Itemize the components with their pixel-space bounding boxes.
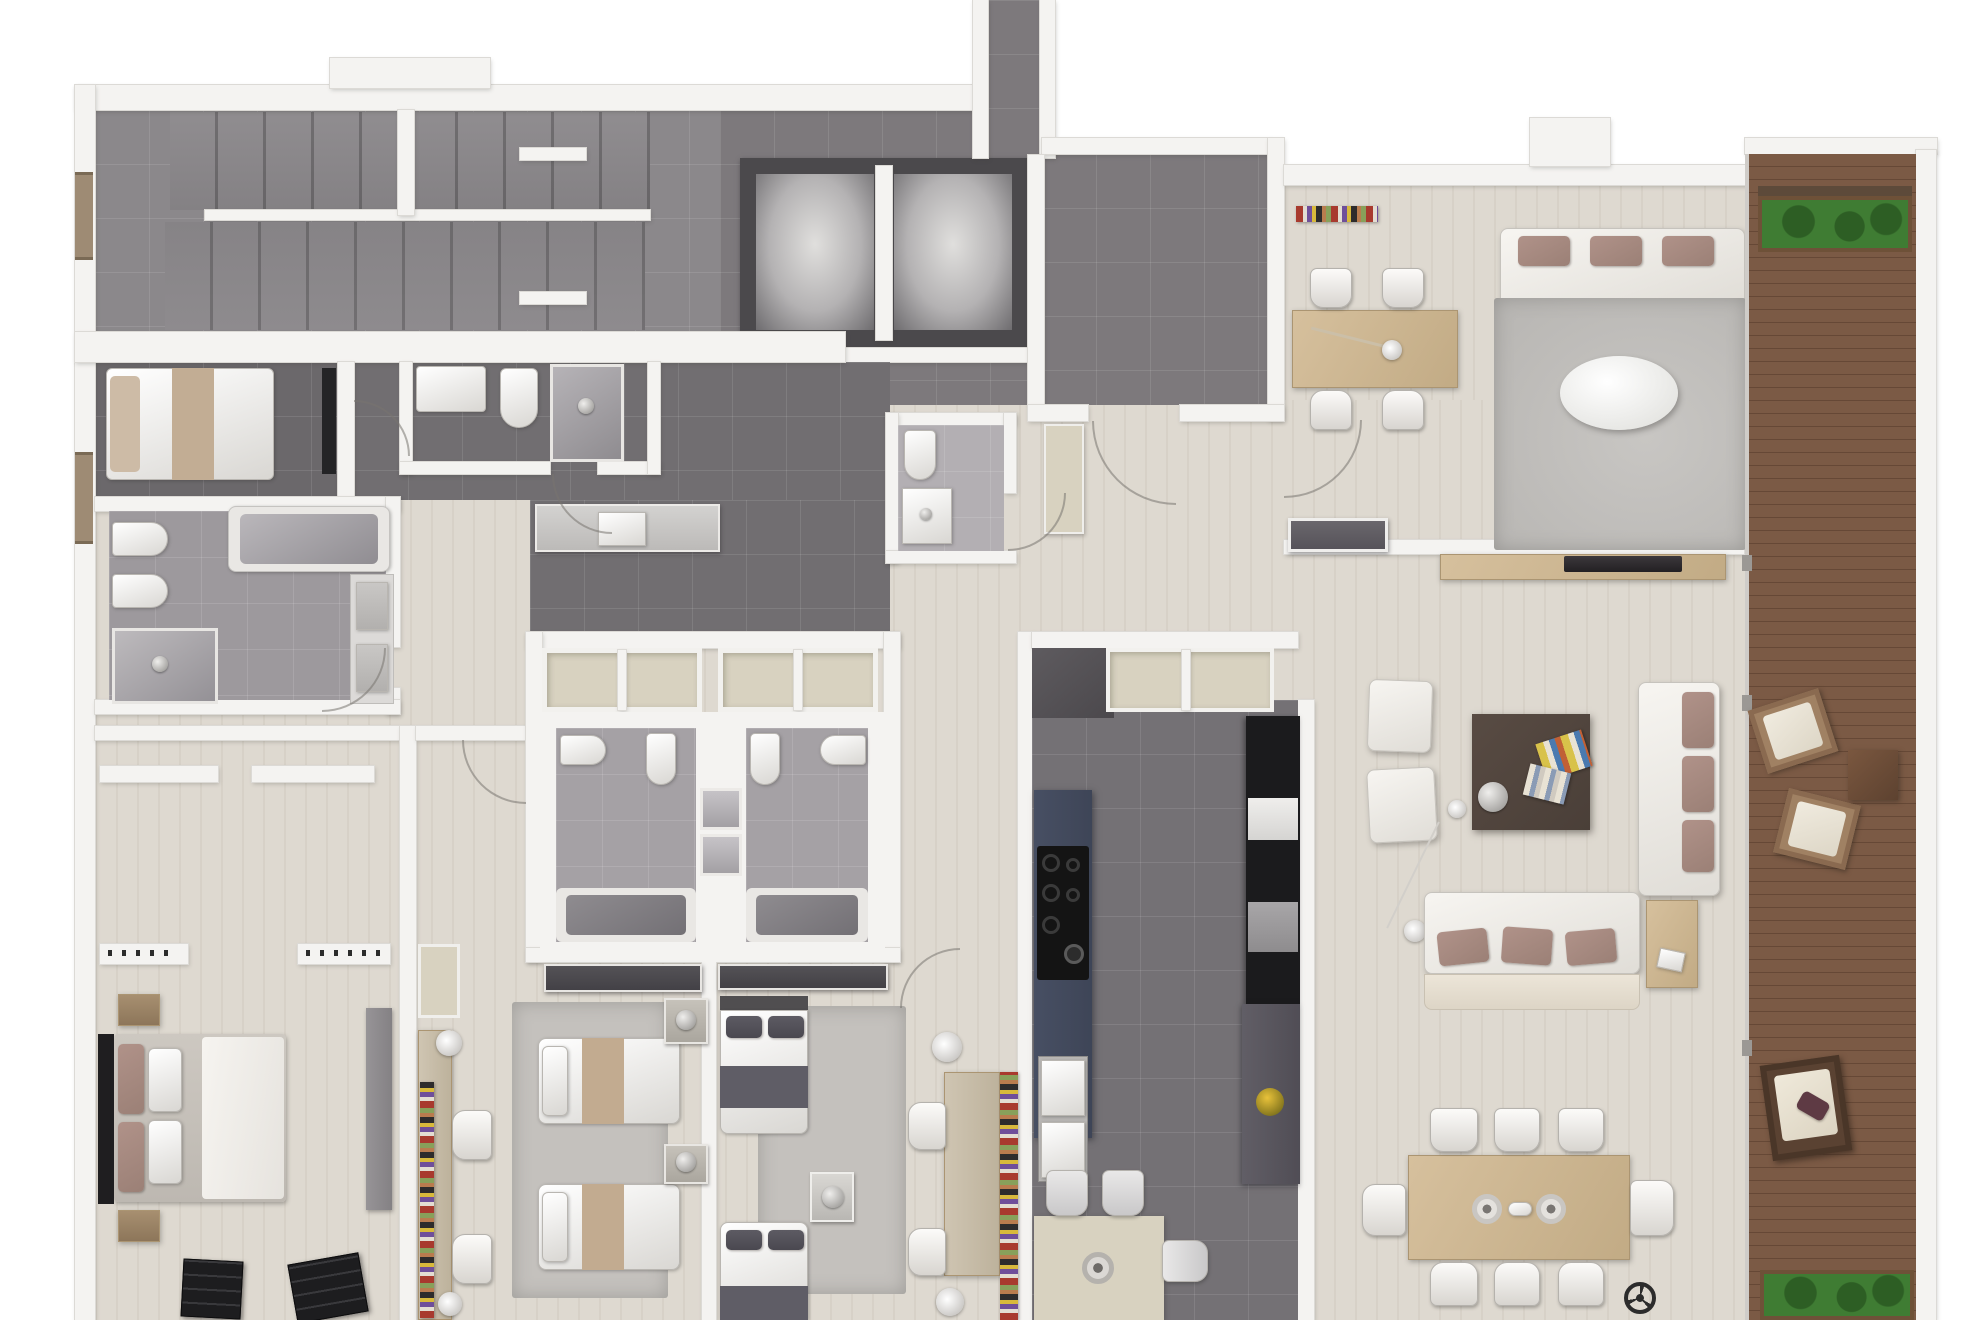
kitchen-upper-cabinets (1106, 648, 1274, 712)
wall-bump-top (330, 58, 490, 88)
wall-hall-top (1042, 138, 1272, 154)
bath-upper-shower-drain (578, 398, 594, 414)
closet-rail-2-hangers (306, 950, 380, 956)
dining-chair-left (1362, 1184, 1406, 1236)
elevator-divider-wall (876, 166, 892, 340)
wall-study-top (1284, 165, 1749, 185)
living-sofa-right-cushion-3 (1682, 820, 1714, 872)
wall-master-zone-top (95, 726, 400, 740)
lounge-sofa-top-cushion-3 (1662, 236, 1714, 266)
study-chair-4 (1382, 390, 1424, 430)
bed2-closet (418, 944, 460, 1018)
bed2-arc-lamp-1 (436, 1030, 462, 1056)
lounge-oval-table (1560, 356, 1678, 430)
floor-plan-canvas (0, 0, 1980, 1320)
arc-lamp-head (1448, 800, 1466, 818)
wall-shelf-1 (520, 148, 586, 160)
bed2-desk-chair-2 (452, 1234, 492, 1284)
lounge-sofa-top-cushion-1 (1518, 236, 1570, 266)
bed2-bed-a-runner (582, 1038, 624, 1124)
cooktop-burner-2 (1066, 858, 1080, 872)
wall-wc-bottom (886, 551, 1016, 563)
master-pillow-white-1 (148, 1048, 182, 1112)
top-corridor-floor (988, 0, 1040, 160)
window-sill-2 (75, 452, 93, 544)
bed3-bed-c-pillow-2 (768, 1016, 804, 1038)
wall-stair-bottom (75, 332, 845, 362)
lounge-sofa-top-cushion-2 (1590, 236, 1642, 266)
study-bookshelf (1296, 206, 1378, 222)
study-chair-2 (1382, 268, 1424, 308)
bed2-arc-lamp-2 (438, 1292, 462, 1316)
bath-upper-toilet (500, 368, 538, 428)
terrace-side-table (1848, 750, 1898, 800)
bath-right-bidet (820, 735, 866, 765)
breakfast-chair-3 (1162, 1240, 1208, 1282)
bed3-bed-d-pillow-1 (726, 1230, 762, 1250)
master-duvet (202, 1037, 284, 1199)
ceiling-fan-symbol (1624, 1282, 1656, 1314)
master-nightstand-1 (118, 994, 160, 1026)
bath-left-tub-basin (566, 895, 686, 935)
bed3-bed-d-band (720, 1286, 808, 1320)
outer-wall-left (75, 85, 95, 1320)
bed3-bed-c-band (720, 1066, 808, 1108)
wall-bed2-strip-top (416, 726, 526, 740)
bed2-nightstand-1-decor (676, 1010, 696, 1030)
bedroom1-bed-runner (172, 368, 214, 480)
master-barcelona-chair-1 (181, 1258, 244, 1319)
elevator-cab-1 (756, 174, 874, 330)
bed3-desk-chair-2 (908, 1228, 946, 1276)
kitchen-sink-basin-1 (1041, 1060, 1085, 1116)
outer-wall-right (1916, 150, 1936, 1320)
master-toilet (112, 574, 168, 608)
bath-shared-shower-1 (700, 788, 742, 830)
stairs-lower-flight (165, 222, 645, 330)
bed2-bed-b-pillow (542, 1192, 568, 1262)
breakfast-chair-1 (1046, 1170, 1088, 1216)
wall-bath-upper-bottom-a (400, 462, 550, 474)
bedroom1-radiator (322, 368, 336, 474)
window-sill-1 (75, 172, 93, 260)
terrace-post-1 (1742, 555, 1752, 571)
wall-wc-left (886, 413, 898, 563)
bed2-nightstand-2-decor (676, 1152, 696, 1172)
cooktop-burner-1 (1042, 854, 1060, 872)
kitchen-hood-corner (1032, 648, 1114, 718)
terrace-pergola-beam (1758, 186, 1912, 196)
kitchen-appliance-gray-module (1248, 902, 1298, 952)
kitchen-cabinet-divider (1182, 650, 1190, 710)
bed3-arc-lamp-2 (936, 1288, 964, 1316)
wall-kitchen-top (1032, 632, 1298, 648)
entry-pass-counter (1288, 518, 1388, 552)
breakfast-table-plate (1082, 1252, 1114, 1284)
cooktop-burner-4 (1066, 888, 1080, 902)
dining-chair-right (1630, 1180, 1674, 1236)
bed2-bed-a-pillow (542, 1046, 568, 1116)
cooktop-burner-5 (1042, 916, 1060, 934)
bedroom1-pillow (110, 376, 140, 472)
bed3-arc-lamp-1 (932, 1032, 962, 1062)
dining-chair-bottom-2 (1494, 1262, 1540, 1306)
wall-wc-top (886, 413, 1016, 425)
master-bathtub-basin (240, 514, 378, 564)
master-bidet (112, 522, 168, 556)
fruit-bowl (1256, 1088, 1284, 1116)
bed3-wardrobe (718, 964, 888, 990)
dining-plate-2 (1536, 1194, 1566, 1224)
bed2-wardrobe (544, 964, 702, 992)
master-nightstand-2 (118, 1210, 160, 1242)
kitchen-appliance-white-module (1248, 798, 1298, 840)
closet-rail-shelf-1 (100, 766, 218, 782)
wall-hall-bottom-a (1028, 405, 1088, 421)
bath-upper-sink (416, 366, 486, 412)
dining-chair-top-2 (1494, 1108, 1540, 1152)
stairs-handrail (205, 210, 650, 220)
wall-block-top (526, 632, 900, 648)
wall-corridor-strip-left (973, 0, 988, 158)
outer-wall-top-left (75, 85, 980, 110)
wall-stair-partial (398, 110, 414, 215)
wall-kitchen-east (1298, 700, 1314, 1320)
wall-master-bed2 (400, 726, 416, 1320)
dining-chair-top-3 (1558, 1108, 1604, 1152)
study-chair-1 (1310, 268, 1352, 308)
closet-rail-1-hangers (108, 950, 178, 956)
wall-hall-right (1268, 138, 1284, 420)
bed2-bed-b-runner (582, 1184, 624, 1270)
wc-toilet (904, 430, 936, 480)
master-vanity-sink-1 (356, 582, 388, 630)
master-pillow-mauve-1 (118, 1044, 144, 1114)
master-pillow-mauve-2 (118, 1122, 144, 1192)
elevator-cab-2 (894, 174, 1012, 330)
kitchen-appliance-column (1246, 716, 1300, 1004)
bed3-bed-c-pillow-1 (726, 1016, 762, 1038)
coffee-table-bowl (1478, 782, 1508, 812)
bed3-bookshelf (1000, 1072, 1018, 1320)
living-side-table (1646, 900, 1698, 988)
closet-rail-shelf-2 (252, 766, 374, 782)
master-barcelona-chair-2 (287, 1252, 368, 1320)
living-sofa-bottom-cushion-3 (1565, 928, 1618, 966)
terrace-planter-top (1758, 196, 1912, 252)
bath-right-tub-basin (756, 895, 858, 935)
study-desk-lamp (1382, 340, 1402, 360)
wall-bath-upper-left (400, 362, 412, 474)
wall-deck-top (1745, 138, 1937, 154)
bed3-desk (944, 1072, 1000, 1276)
wall-bump-top-right (1530, 118, 1610, 166)
study-desk (1292, 310, 1458, 388)
wall-shelf-2 (520, 292, 586, 304)
terrace-glass-wall (1745, 154, 1749, 1320)
closet-row-left-divider (618, 650, 626, 710)
terrace-post-3 (1742, 1040, 1752, 1056)
bath-shared-shower-2 (700, 834, 742, 876)
living-armchair-1 (1367, 679, 1433, 753)
wall-bath-upper-right (648, 362, 660, 474)
master-tv-panel (366, 1008, 392, 1210)
bath-left-bidet (560, 735, 606, 765)
bed3-nightstand-decor (822, 1186, 844, 1208)
dining-chair-bottom-3 (1558, 1262, 1604, 1306)
bath-left-toilet (646, 733, 676, 785)
entry-hall-floor (1042, 154, 1268, 405)
breakfast-chair-2 (1102, 1170, 1144, 1216)
terrace-planter-bottom (1760, 1270, 1914, 1320)
dining-candles (1508, 1202, 1532, 1216)
closet-row-right-divider (794, 650, 802, 710)
tv-screen (1564, 556, 1682, 572)
living-sofa-chaise (1424, 974, 1640, 1010)
wc-drain (920, 508, 932, 520)
cooktop-burner-3 (1042, 884, 1060, 902)
terrace-post-2 (1742, 695, 1752, 711)
wall-corridor-strip-right (1040, 0, 1055, 158)
master-bed-headboard (98, 1034, 114, 1204)
living-sofa-bottom-cushion-2 (1501, 926, 1553, 965)
dining-plate-1 (1472, 1194, 1502, 1224)
master-shower-drain (152, 656, 168, 672)
wall-hall-bottom-b (1180, 405, 1284, 421)
dining-chair-bottom-1 (1430, 1262, 1478, 1306)
living-sofa-right-cushion-2 (1682, 756, 1714, 812)
bed3-bed-d-pillow-2 (768, 1230, 804, 1250)
arc-lamp-base (1404, 920, 1426, 942)
living-sofa-right-cushion-1 (1682, 692, 1714, 748)
master-pillow-white-2 (148, 1120, 182, 1184)
wall-wc-right (1004, 413, 1016, 493)
dining-chair-top-1 (1430, 1108, 1478, 1152)
wall-bedroom1-right (338, 362, 354, 500)
bed2-bookshelf (420, 1082, 434, 1318)
bed2-desk-chair-1 (452, 1110, 492, 1160)
wall-hall-left (1028, 155, 1044, 405)
cooktop-burner-6 (1064, 944, 1084, 964)
bed3-desk-chair-1 (908, 1102, 946, 1150)
wall-block-right (884, 632, 900, 962)
living-sofa-bottom-cushion-1 (1436, 927, 1489, 966)
living-armchair-2 (1366, 766, 1438, 843)
bath-right-toilet (750, 733, 780, 785)
